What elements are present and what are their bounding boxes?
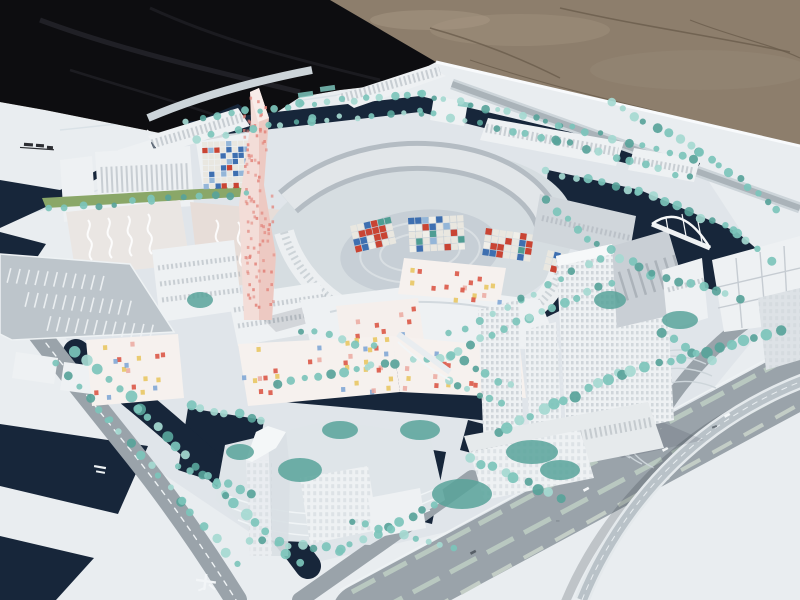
model-tree <box>298 329 304 335</box>
model-tree <box>708 156 716 164</box>
model-tree <box>462 326 469 333</box>
model-tree <box>409 512 418 521</box>
mosaic-tile <box>215 183 220 188</box>
model-tree <box>285 543 291 549</box>
model-tree <box>689 155 698 164</box>
mosaic-tile <box>423 238 430 245</box>
model-tree <box>235 126 243 134</box>
confetti-tile <box>417 269 422 274</box>
model-tree <box>212 191 220 199</box>
mosaic-tile <box>437 237 444 244</box>
confetti-tile <box>103 345 107 350</box>
mosaic-tile <box>483 242 490 249</box>
pink-dot <box>252 288 255 291</box>
mosaic-tile <box>221 177 226 182</box>
mosaic-tile <box>203 184 208 189</box>
model-tree <box>192 135 201 144</box>
model-tree <box>296 559 304 567</box>
pink-dot <box>253 295 256 298</box>
model-tree <box>418 506 426 514</box>
model-tree <box>755 190 761 196</box>
model-tree <box>437 542 443 548</box>
confetti-tile <box>124 363 128 368</box>
model-tree <box>457 97 465 105</box>
model-tree <box>247 489 256 498</box>
mosaic-tile <box>215 171 220 176</box>
model-tree <box>445 330 451 336</box>
confetti-tile <box>155 354 159 359</box>
model-tree <box>212 480 221 489</box>
model-tree <box>707 356 717 366</box>
model-tree <box>615 254 624 263</box>
model-tree <box>653 123 663 133</box>
model-tree <box>709 217 716 224</box>
pink-dot <box>272 220 275 223</box>
model-tree <box>522 130 529 137</box>
model-tree <box>625 157 633 165</box>
mosaic-tile <box>221 171 226 176</box>
mosaic-tile <box>226 153 231 158</box>
mosaic-tile <box>232 147 237 152</box>
confetti-tile <box>411 306 416 311</box>
model-tree <box>107 416 114 423</box>
pink-dot <box>252 211 255 214</box>
model-tree <box>451 545 458 552</box>
pink-dot <box>253 247 256 250</box>
model-tree <box>228 498 239 509</box>
pink-dot <box>262 225 265 228</box>
model-tree <box>222 132 229 139</box>
model-tree <box>624 186 632 194</box>
model-tree <box>584 384 592 392</box>
mosaic-tile <box>517 254 524 261</box>
tree-cluster <box>226 444 254 460</box>
model-tree <box>684 207 693 216</box>
mosaic-tile <box>208 154 213 159</box>
mosaic-tile <box>451 243 458 250</box>
model-tree <box>573 295 580 302</box>
confetti-tile <box>253 378 257 383</box>
mosaic-tile <box>408 218 415 225</box>
model-tree <box>635 187 643 195</box>
mosaic-tile <box>506 231 513 238</box>
mosaic-tile <box>443 216 450 223</box>
model-tree <box>500 325 508 333</box>
model-tree <box>489 332 496 339</box>
model-tree <box>234 561 240 567</box>
model-tree <box>477 393 483 399</box>
mosaic-tile <box>409 239 416 246</box>
mosaic-tile <box>233 159 238 164</box>
pink-dot <box>250 97 253 100</box>
model-tree <box>387 525 395 533</box>
model-tree <box>648 270 655 277</box>
model-tree <box>236 485 245 494</box>
mosaic-tile <box>220 153 225 158</box>
pink-dot <box>246 202 249 205</box>
tree-cluster <box>322 421 358 439</box>
model-tree <box>776 325 786 335</box>
model-tree <box>594 241 600 247</box>
model-tree <box>525 478 533 486</box>
model-tree <box>543 119 548 124</box>
model-tree <box>355 116 361 122</box>
model-tree <box>583 288 591 296</box>
pink-dot <box>256 217 259 220</box>
model-tree <box>519 112 527 120</box>
mosaic-tile <box>520 233 527 240</box>
mosaic-tile <box>430 245 437 252</box>
mosaic-tile <box>215 177 220 182</box>
mosaic-tile <box>499 230 506 237</box>
mosaic-tile <box>233 177 238 182</box>
model-tree <box>772 206 780 214</box>
confetti-tile <box>471 297 476 302</box>
confetti-tile <box>491 283 496 288</box>
model-tree <box>126 391 138 403</box>
model-tree <box>246 537 254 545</box>
model-tree <box>476 460 485 469</box>
mosaic-tile <box>436 216 443 223</box>
confetti-tile <box>161 352 165 357</box>
pink-dot <box>244 136 247 139</box>
confetti-tile <box>434 383 439 388</box>
mosaic-tile <box>416 238 423 245</box>
model-tree <box>593 378 603 388</box>
mosaic-tile <box>444 237 451 244</box>
model-tree <box>339 96 345 102</box>
model-tree <box>349 519 355 525</box>
model-tree <box>476 317 484 325</box>
model-tree <box>594 283 602 291</box>
confetti-tile <box>341 387 345 392</box>
tree-cluster <box>662 311 698 329</box>
confetti-tile <box>263 376 267 381</box>
mosaic-tile <box>233 165 238 170</box>
model-tree <box>696 214 705 223</box>
pink-dot <box>246 262 249 265</box>
pink-dot <box>264 231 267 234</box>
model-tree <box>558 276 564 282</box>
mosaic-tile <box>457 222 464 229</box>
model-tree <box>508 381 515 388</box>
confetti-tile <box>384 351 388 356</box>
mosaic-tile <box>226 141 231 146</box>
model-tree <box>585 260 593 268</box>
pink-dot <box>261 212 264 215</box>
model-tree <box>339 368 349 378</box>
mosaic-tile <box>496 251 503 258</box>
model-tree <box>559 396 568 405</box>
mosaic-tile <box>511 246 518 253</box>
confetti-tile <box>317 357 321 362</box>
model-tree <box>441 96 447 102</box>
mosaic-tile <box>437 230 444 237</box>
pink-dot <box>270 283 273 286</box>
model-tree <box>538 308 545 315</box>
mosaic-tile <box>498 237 505 244</box>
pink-dot <box>256 134 259 137</box>
gravel-patch <box>370 10 490 30</box>
model-tree <box>526 314 534 322</box>
confetti-tile <box>156 377 160 382</box>
confetti-tile <box>373 337 378 342</box>
model-tree <box>557 494 566 503</box>
model-tree <box>401 110 406 115</box>
pink-dot <box>258 306 261 309</box>
model-tree <box>95 406 102 413</box>
model-tree <box>527 413 534 420</box>
model-tree <box>222 492 229 499</box>
model-tree <box>662 274 670 282</box>
model-tree <box>481 105 490 114</box>
pink-dot <box>256 205 259 208</box>
model-tree <box>603 374 614 385</box>
mosaic-tile <box>203 166 208 171</box>
confetti-tile <box>268 390 272 395</box>
model-tree <box>544 281 551 288</box>
model-tree <box>446 351 455 360</box>
model-tree <box>573 175 580 182</box>
mosaic-tile <box>239 159 244 164</box>
model-tree <box>531 292 537 298</box>
model-tree <box>178 497 186 505</box>
model-tree <box>196 404 204 412</box>
pink-dot <box>253 200 256 203</box>
confetti-tile <box>356 319 361 324</box>
pink-dot <box>262 142 265 145</box>
model-tree <box>724 168 733 177</box>
model-tree <box>417 90 423 96</box>
model-tree <box>567 139 573 145</box>
mosaic-tile <box>423 245 430 252</box>
confetti-tile <box>94 390 98 395</box>
mosaic-tile <box>436 223 443 230</box>
model-tree <box>670 335 678 343</box>
pink-dot <box>248 120 251 123</box>
mosaic-tile <box>444 244 451 251</box>
model-tree <box>311 328 317 334</box>
mosaic-tile <box>214 153 219 158</box>
model-tree <box>446 114 455 123</box>
pink-dot <box>243 129 246 132</box>
model-tree <box>116 385 123 392</box>
model-tree <box>548 398 559 409</box>
model-tree <box>639 362 650 373</box>
confetti-tile <box>143 376 147 381</box>
model-tree <box>738 335 749 346</box>
model-tree <box>368 113 374 119</box>
model-tree <box>687 173 693 179</box>
model-tree <box>326 331 333 338</box>
model-tree <box>477 120 483 126</box>
model-tree <box>654 165 661 172</box>
model-tree <box>92 364 103 375</box>
model-tree <box>148 198 155 205</box>
mosaic-tile <box>504 245 511 252</box>
pink-dot <box>246 163 249 166</box>
model-tree <box>212 534 221 543</box>
model-tree <box>367 361 374 368</box>
confetti-tile <box>385 337 390 342</box>
model-tree <box>639 142 645 148</box>
confetti-tile <box>433 374 438 379</box>
model-tree <box>625 366 636 377</box>
model-tree <box>241 106 249 114</box>
pink-dot <box>249 255 252 258</box>
model-tree <box>273 380 282 389</box>
model-tree <box>115 428 121 434</box>
confetti-tile <box>444 285 449 290</box>
model-tree <box>542 195 550 203</box>
model-tree <box>620 105 626 111</box>
model-tree <box>664 128 673 137</box>
model-tree <box>582 145 591 154</box>
model-tree <box>635 263 644 272</box>
mosaic-tile <box>491 236 498 243</box>
model-tree <box>175 463 181 469</box>
model-tree <box>241 509 253 521</box>
mosaic-tile <box>451 236 458 243</box>
confetti-tile <box>372 388 376 393</box>
model-tree <box>548 304 556 312</box>
confetti-tile <box>153 386 157 391</box>
confetti-tile <box>386 386 390 391</box>
mosaic-tile <box>458 229 465 236</box>
mosaic-tile <box>203 172 208 177</box>
confetti-tile <box>477 276 482 281</box>
mosaic-tile <box>444 230 451 237</box>
mosaic-tile <box>232 153 237 158</box>
mosaic-tile <box>408 225 415 232</box>
model-tree <box>314 373 322 381</box>
model-tree <box>642 161 650 169</box>
confetti-tile <box>126 368 130 373</box>
mosaic-tile <box>238 147 243 152</box>
pink-dot <box>264 130 267 133</box>
model-tree <box>294 119 299 124</box>
model-tree <box>584 174 593 183</box>
model-tree <box>399 530 409 540</box>
model-tree <box>295 99 304 108</box>
mosaic-tile <box>215 159 220 164</box>
model-tree <box>687 142 695 150</box>
mosaic-tile <box>513 232 520 239</box>
mosaic-tile <box>227 177 232 182</box>
model-tree <box>715 342 725 352</box>
model-tree <box>699 282 708 291</box>
pink-dot <box>247 294 250 297</box>
pink-dot <box>246 148 249 151</box>
model-tree <box>338 335 346 343</box>
confetti-tile <box>403 386 408 391</box>
mosaic-tile <box>415 217 422 224</box>
mosaic-tile <box>429 224 436 231</box>
model-tree <box>584 236 591 243</box>
pink-dot <box>248 283 251 286</box>
mosaic-tile <box>227 183 232 188</box>
confetti-tile <box>275 374 279 379</box>
model-tree <box>351 341 359 349</box>
mosaic-tile <box>457 215 464 222</box>
model-tree <box>200 522 209 531</box>
model-tree <box>761 329 772 340</box>
model-tree <box>326 369 336 379</box>
model-tree <box>359 535 367 543</box>
model-tree <box>431 110 437 116</box>
confetti-tile <box>132 385 136 390</box>
mosaic-tile <box>239 165 244 170</box>
model-tree <box>221 548 231 558</box>
model-tree <box>387 110 395 118</box>
mosaic-tile <box>238 141 243 146</box>
photo-architectural-model <box>0 0 800 600</box>
model-tree <box>248 414 257 423</box>
model-tree <box>481 369 490 378</box>
model-tree <box>544 487 553 496</box>
model-tree <box>210 408 218 416</box>
mosaic-tile <box>221 165 226 170</box>
pink-dot <box>250 159 253 162</box>
mosaic-tile <box>422 217 429 224</box>
mosaic-tile <box>202 148 207 153</box>
pink-dot <box>249 297 252 300</box>
pink-dot <box>263 270 266 273</box>
model-tree <box>192 463 200 471</box>
model-tree <box>672 172 678 178</box>
model-tree <box>346 541 352 547</box>
confetti-tile <box>107 395 111 400</box>
pink-dot <box>251 222 254 225</box>
pink-dot <box>259 130 262 133</box>
model-tree <box>374 525 382 533</box>
model-tree <box>182 119 188 125</box>
model-tree <box>649 191 659 201</box>
confetti-tile <box>410 268 415 273</box>
model-tree <box>754 246 760 252</box>
mosaic-tile <box>227 165 232 170</box>
mosaic-tile <box>208 148 213 153</box>
model-tree <box>560 298 570 308</box>
pink-dot <box>266 288 269 291</box>
confetti-tile <box>258 376 262 381</box>
mosaic-tile <box>233 183 238 188</box>
model-tree <box>249 125 257 133</box>
mosaic-tile <box>423 231 430 238</box>
pink-dot <box>259 243 262 246</box>
model-tree <box>204 472 212 480</box>
model-tree <box>509 128 517 136</box>
mosaic-tile <box>227 159 232 164</box>
model-tree <box>504 304 511 311</box>
model-tree <box>181 450 190 459</box>
model-tree <box>129 197 136 204</box>
pink-dot <box>269 303 272 306</box>
model-tree <box>112 203 117 208</box>
confetti-tile <box>368 347 372 352</box>
model-tree <box>612 182 620 190</box>
pink-dot <box>270 271 273 274</box>
model-tree <box>490 311 496 317</box>
model-tree <box>676 134 685 143</box>
mosaic-tile <box>490 243 497 250</box>
model-tree <box>657 328 667 338</box>
tree-cluster <box>432 479 492 509</box>
model-tree <box>744 184 752 192</box>
pink-dot <box>257 251 260 254</box>
pink-dot <box>247 272 250 275</box>
model-tree <box>559 173 566 180</box>
